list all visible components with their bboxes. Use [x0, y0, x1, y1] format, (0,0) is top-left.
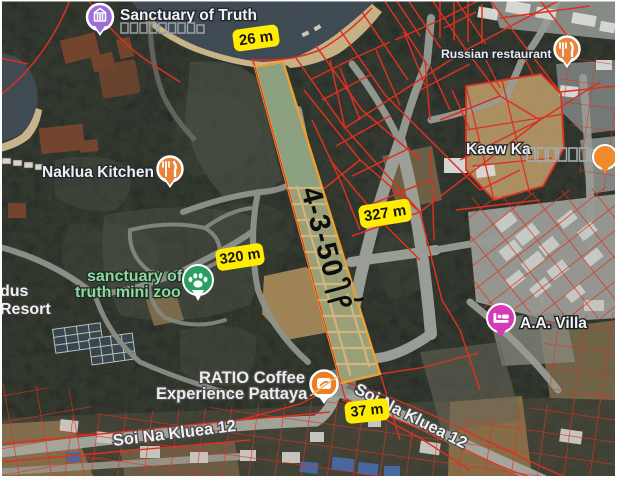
svg-text:dus: dus: [0, 283, 29, 300]
svg-text:A.A. Villa: A.A. Villa: [520, 315, 587, 332]
svg-text:Russian restaurant: Russian restaurant: [441, 47, 551, 61]
svg-text:Experience Pattaya: Experience Pattaya: [156, 385, 308, 403]
svg-text:Sanctuary of Truth: Sanctuary of Truth: [120, 7, 257, 24]
svg-text:Naklua Kitchen: Naklua Kitchen: [42, 164, 154, 181]
svg-text:Kaew Ka: Kaew Ka: [466, 141, 531, 158]
svg-text:sanctuary of: sanctuary of: [87, 268, 183, 285]
svg-text:Resort: Resort: [0, 301, 51, 318]
svg-text:truth mini zoo: truth mini zoo: [75, 284, 181, 301]
